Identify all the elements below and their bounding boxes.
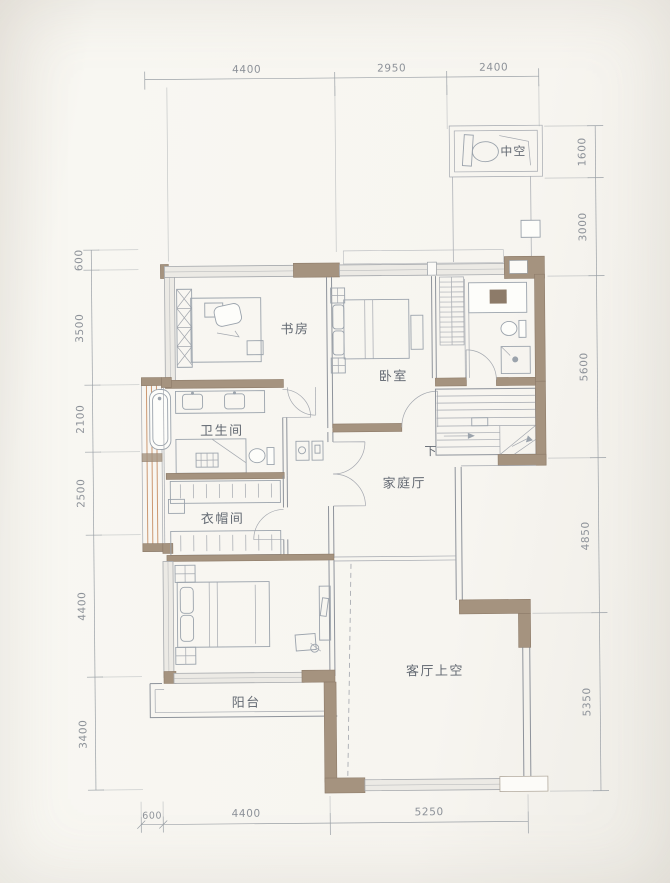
shower-enclosure — [176, 439, 246, 474]
room-bedroom-lower — [163, 554, 335, 683]
room-label-balcony: 阳台 — [232, 696, 261, 711]
dim-left-3: 2100 — [75, 405, 87, 434]
bookshelf — [177, 289, 193, 367]
bathtub — [149, 389, 171, 449]
linen-closet — [431, 276, 469, 378]
study-door — [287, 387, 315, 415]
dim-bottom-2: 4400 — [232, 808, 261, 820]
room-small-bath — [434, 274, 545, 386]
dim-bottom-1: 600 — [142, 811, 162, 822]
dim-top-3: 2400 — [479, 61, 508, 73]
corridor-fixtures — [296, 441, 323, 460]
dim-right-3: 5600 — [578, 352, 590, 381]
room-bathroom: 卫生间 — [175, 389, 323, 476]
dim-left-1: 600 — [73, 249, 85, 271]
room-label-stair-down: 下 — [424, 444, 437, 458]
room-void-top: 中空 — [449, 125, 543, 262]
living-void: 客厅上空 — [323, 555, 548, 793]
balcony: 阳台 — [150, 682, 337, 718]
wall-niche — [509, 260, 527, 273]
room-label-void-top: 中空 — [500, 143, 526, 158]
void-window — [523, 647, 531, 776]
dim-bottom: 600 4400 5250 — [137, 794, 528, 836]
pillow — [180, 587, 193, 613]
chair-table — [295, 633, 321, 652]
wardrobe-bottom — [171, 530, 281, 555]
dim-right-1: 1600 — [576, 137, 588, 166]
wall-study-bedroom — [326, 277, 332, 428]
room-label-cloakroom: 衣帽间 — [201, 511, 245, 527]
desk — [191, 298, 264, 363]
pillow — [333, 305, 344, 329]
dim-top-2: 2950 — [377, 62, 406, 74]
shower — [501, 346, 530, 373]
toilet — [501, 320, 526, 337]
wardrobe-top — [170, 480, 280, 503]
dim-right-5: 5350 — [581, 687, 593, 716]
stairs: 下 — [424, 381, 546, 466]
bay-window — [141, 377, 173, 553]
wall-hall-west — [328, 432, 334, 558]
twin-sinks — [175, 391, 264, 414]
dim-bottom-3: 5250 — [415, 806, 444, 818]
bed — [175, 565, 270, 665]
floor-plan-canvas: 4400 2950 2400 1600 3000 5600 4850 5350 … — [0, 0, 670, 883]
tub-oval — [472, 142, 498, 162]
dim-top-1: 4400 — [232, 64, 261, 76]
canopy-outline — [343, 250, 503, 264]
pillow — [333, 331, 344, 355]
bathroom-door — [282, 389, 310, 417]
pillow — [180, 615, 193, 641]
dim-left-4: 2500 — [75, 479, 87, 508]
bed-bench — [411, 315, 423, 349]
dim-left-2: 3500 — [74, 314, 86, 343]
dim-left-5: 4400 — [76, 592, 88, 621]
panel — [462, 135, 473, 166]
room-bedroom: 卧室 — [331, 287, 438, 432]
cloakroom-door — [254, 509, 284, 539]
planter-box — [500, 776, 548, 791]
top-wall — [160, 256, 544, 281]
double-door — [333, 442, 366, 506]
dim-right-2: 3000 — [577, 212, 589, 241]
room-label-bathroom: 卫生间 — [200, 424, 244, 439]
dim-left-6: 3400 — [77, 720, 89, 749]
plan-drawing: 4400 2950 2400 1600 3000 5600 4850 5350 … — [72, 61, 610, 838]
dim-left: 600 3500 2100 2500 4400 3400 — [73, 249, 143, 790]
basin — [490, 289, 507, 303]
chair — [213, 302, 243, 327]
bed — [331, 287, 424, 373]
room-label-bedroom: 卧室 — [379, 368, 408, 384]
room-label-study: 书房 — [280, 321, 309, 337]
small-bath-door — [466, 350, 496, 380]
toilet — [249, 448, 274, 465]
column — [521, 220, 540, 237]
room-cloakroom: 衣帽间 — [166, 472, 288, 559]
room-label-family-hall: 家庭厅 — [382, 475, 426, 491]
bedroom-door — [401, 391, 437, 427]
dim-right-4: 4850 — [580, 521, 592, 550]
room-study: 书房 — [164, 276, 315, 416]
floor-plan-page: 4400 2950 2400 1600 3000 5600 4850 5350 … — [0, 0, 670, 883]
room-label-living-void: 客厅上空 — [406, 663, 464, 680]
